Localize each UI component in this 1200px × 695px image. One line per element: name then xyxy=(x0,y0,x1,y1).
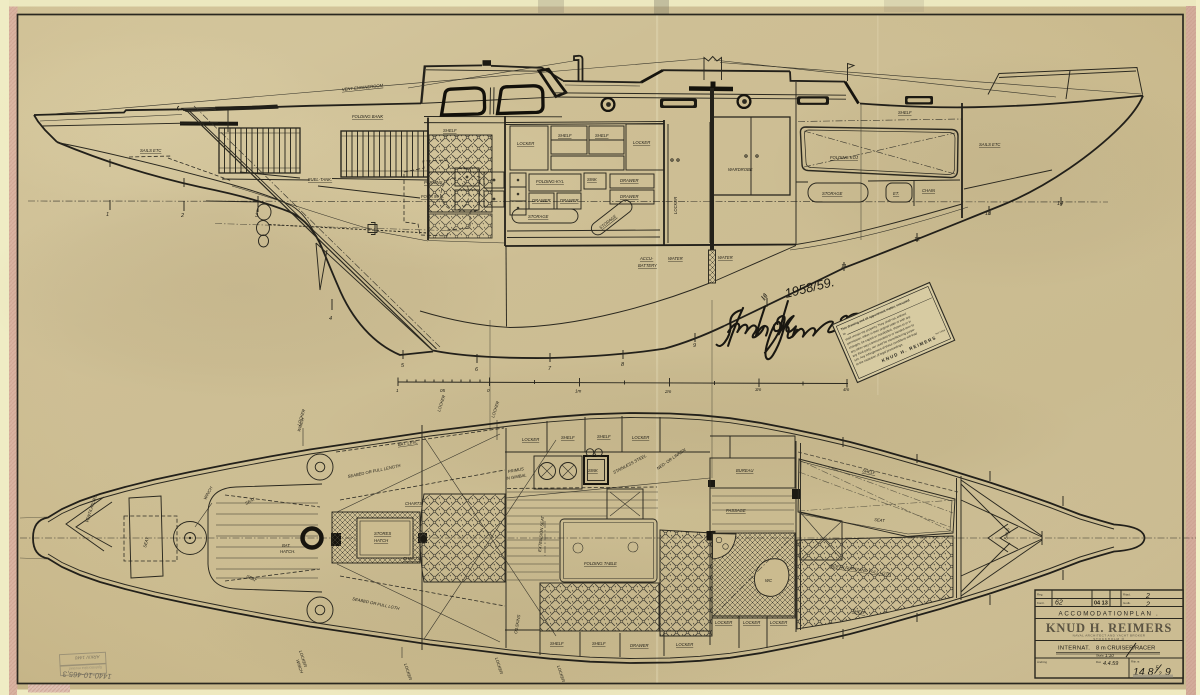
svg-text:05: 05 xyxy=(440,388,446,393)
svg-text:1: 1 xyxy=(106,212,109,218)
svg-text:13: 13 xyxy=(985,211,992,217)
svg-text:HATCH.: HATCH. xyxy=(280,549,295,554)
svg-text:12: 12 xyxy=(914,237,920,243)
svg-text:FOLDING-KYL: FOLDING-KYL xyxy=(536,179,565,184)
svg-text:SHELF: SHELF xyxy=(592,641,606,646)
svg-text:LOCKER: LOCKER xyxy=(743,620,760,625)
svg-text:4: 4 xyxy=(329,316,332,322)
svg-text:2m: 2m xyxy=(664,389,672,394)
svg-text:CHARTS: CHARTS xyxy=(403,556,420,561)
svg-text:LOCKER: LOCKER xyxy=(632,435,649,440)
svg-text:SHELF: SHELF xyxy=(898,110,912,115)
svg-text:FOLDING TABLE: FOLDING TABLE xyxy=(584,561,617,566)
svg-text:ACCOMODATIONPLAN .: ACCOMODATIONPLAN . xyxy=(1059,611,1160,618)
svg-text:DRAWER: DRAWER xyxy=(560,198,579,203)
svg-text:LOCKER: LOCKER xyxy=(715,620,732,625)
svg-text:Ritn.nr.: Ritn.nr. xyxy=(1131,660,1140,664)
svg-text:8 m CRUISER/RACER: 8 m CRUISER/RACER xyxy=(1096,646,1155,652)
svg-text:PASSAGE: PASSAGE xyxy=(726,508,746,513)
svg-text:3m: 3m xyxy=(755,387,762,392)
svg-text:LOCKER: LOCKER xyxy=(770,620,787,625)
svg-text:62: 62 xyxy=(1055,600,1063,607)
svg-text:DRAWER: DRAWER xyxy=(532,198,551,203)
svg-text:CHAIN: CHAIN xyxy=(922,188,936,193)
svg-text:04 13: 04 13 xyxy=(1094,601,1108,607)
svg-text:1m: 1m xyxy=(575,389,582,394)
svg-text:SHELF: SHELF xyxy=(558,133,572,138)
svg-text:Kontr.: Kontr. xyxy=(1037,601,1045,605)
svg-text:9: 9 xyxy=(693,343,696,349)
svg-text:SHELF: SHELF xyxy=(443,128,457,133)
svg-text:0: 0 xyxy=(487,388,490,393)
svg-text:2: 2 xyxy=(1145,602,1150,609)
svg-text:SHELF: SHELF xyxy=(561,435,575,440)
svg-text:SAILS ETC: SAILS ETC xyxy=(140,148,162,153)
svg-text:4.4.59: 4.4.59 xyxy=(1103,661,1118,667)
svg-text:BAT.: BAT. xyxy=(282,543,291,548)
svg-text:SINK: SINK xyxy=(588,468,598,473)
svg-text:Ritad.: Ritad. xyxy=(1123,593,1131,597)
svg-text:1: 1 xyxy=(396,388,399,393)
svg-text:2: 2 xyxy=(180,213,184,219)
svg-text:WATER: WATER xyxy=(718,255,733,260)
svg-text:HATCH: HATCH xyxy=(374,538,389,543)
svg-text:FUEL-TANK.: FUEL-TANK. xyxy=(308,177,332,182)
svg-text:BUREAU: BUREAU xyxy=(736,468,754,473)
svg-text:CHARTS: CHARTS xyxy=(405,501,422,506)
svg-text:INTERNAT.: INTERNAT. xyxy=(1058,646,1090,652)
svg-text:DRAWER: DRAWER xyxy=(620,178,639,183)
svg-text:LOCKER: LOCKER xyxy=(522,437,539,442)
svg-text:SAILS ETC: SAILS ETC xyxy=(979,142,1001,147)
svg-text:BATTERY: BATTERY xyxy=(638,263,658,268)
svg-text:SINK: SINK xyxy=(587,177,597,182)
svg-text:WC: WC xyxy=(765,578,773,583)
svg-text:FOLDING KOJ: FOLDING KOJ xyxy=(830,155,859,160)
svg-text:DRAWER: DRAWER xyxy=(630,643,649,648)
svg-text:4m: 4m xyxy=(843,387,850,392)
svg-text:STORES: STORES xyxy=(374,531,391,536)
svg-text:Skala: Skala xyxy=(1096,654,1104,658)
svg-text:SHELF: SHELF xyxy=(550,641,564,646)
svg-text:ACCU-: ACCU- xyxy=(639,256,654,261)
svg-text:Reg.: Reg. xyxy=(1037,593,1043,597)
svg-text:STORAGE: STORAGE xyxy=(528,214,549,219)
svg-text:LOCKER: LOCKER xyxy=(676,642,693,647)
svg-text:Godk.: Godk. xyxy=(1123,601,1131,605)
svg-text:14: 14 xyxy=(1057,201,1063,207)
svg-text:LOCKER: LOCKER xyxy=(633,140,650,145)
svg-text:Dat.: Dat. xyxy=(1096,660,1101,664)
svg-text:SHELF: SHELF xyxy=(597,434,611,439)
svg-text:Ändring: Ändring xyxy=(1037,660,1047,664)
svg-text:WATER: WATER xyxy=(668,256,683,261)
svg-text:DRAWER: DRAWER xyxy=(620,194,639,199)
svg-text:WARDROBE: WARDROBE xyxy=(728,167,753,172)
svg-text:2: 2 xyxy=(1145,593,1150,600)
svg-text:LOCKER: LOCKER xyxy=(673,197,678,214)
svg-text:1:10: 1:10 xyxy=(1105,653,1114,658)
svg-text:FOLDING BANK: FOLDING BANK xyxy=(352,114,383,119)
svg-text:11: 11 xyxy=(841,264,847,270)
svg-text:ET.: ET. xyxy=(893,191,899,196)
svg-text:LOCKER: LOCKER xyxy=(517,141,534,146)
svg-text:STORAGE: STORAGE xyxy=(822,191,843,196)
svg-text:SHELF: SHELF xyxy=(595,133,609,138)
svg-text:STOCKHOLM Ö: STOCKHOLM Ö xyxy=(1093,637,1125,641)
